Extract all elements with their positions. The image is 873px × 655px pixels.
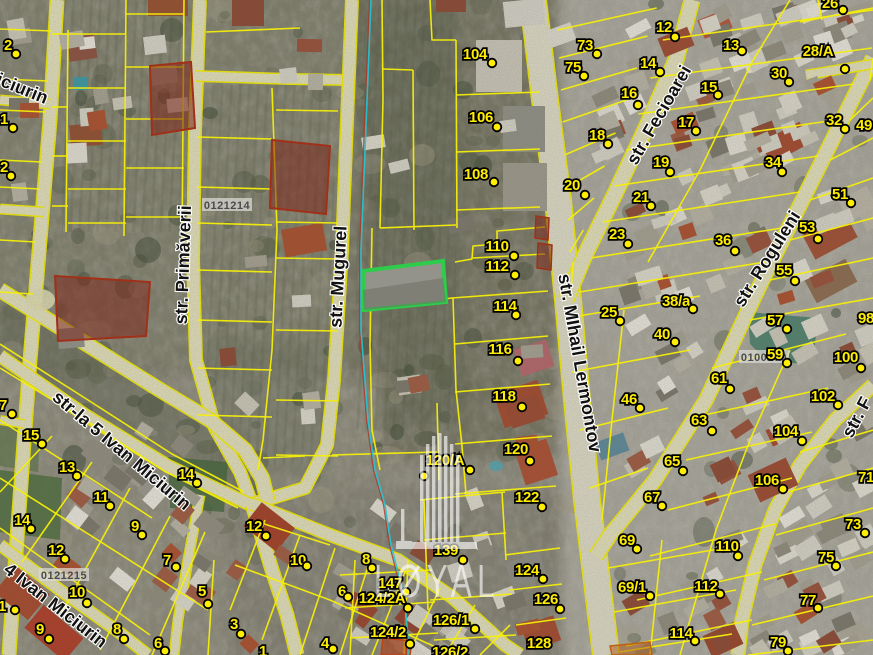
svg-text:118: 118 (492, 388, 515, 405)
svg-text:13: 13 (723, 37, 739, 54)
svg-text:7: 7 (0, 397, 7, 414)
svg-text:126/1: 126/1 (433, 612, 469, 629)
svg-text:1: 1 (259, 643, 267, 655)
svg-text:124: 124 (515, 562, 540, 579)
svg-text:LOYAL: LOYAL (374, 555, 500, 607)
svg-text:7: 7 (163, 552, 171, 569)
svg-text:49: 49 (856, 117, 872, 134)
svg-text:12: 12 (656, 19, 672, 36)
svg-text:71: 71 (858, 469, 873, 486)
svg-text:23: 23 (609, 226, 625, 243)
svg-text:14: 14 (178, 466, 195, 483)
svg-text:126: 126 (534, 591, 558, 608)
svg-text:108: 108 (464, 166, 488, 183)
svg-text:40: 40 (654, 326, 670, 343)
svg-text:102: 102 (811, 388, 835, 405)
svg-text:104: 104 (774, 423, 799, 440)
svg-text:32: 32 (826, 112, 842, 129)
svg-text:110: 110 (485, 238, 508, 255)
svg-text:0121214: 0121214 (204, 200, 251, 212)
svg-text:28/A: 28/A (803, 43, 834, 60)
svg-text:73: 73 (577, 37, 593, 54)
svg-text:51: 51 (832, 186, 848, 203)
svg-text:25: 25 (601, 304, 617, 321)
svg-text:53: 53 (799, 219, 815, 236)
svg-text:18: 18 (589, 127, 605, 144)
svg-text:112: 112 (485, 258, 508, 275)
svg-text:1: 1 (0, 598, 6, 615)
svg-text:98: 98 (858, 310, 873, 327)
svg-text:116: 116 (488, 341, 511, 358)
svg-text:3: 3 (230, 616, 238, 633)
svg-text:10: 10 (69, 584, 85, 601)
svg-text:120: 120 (504, 441, 528, 458)
svg-text:2: 2 (4, 37, 12, 54)
svg-text:59: 59 (767, 346, 783, 363)
svg-text:9: 9 (36, 621, 44, 638)
svg-text:128: 128 (527, 635, 551, 652)
svg-text:20: 20 (564, 177, 580, 194)
svg-text:73: 73 (845, 516, 861, 533)
svg-text:104: 104 (463, 46, 488, 63)
svg-text:26: 26 (822, 0, 838, 12)
svg-text:16: 16 (621, 85, 637, 102)
svg-text:12: 12 (246, 518, 262, 535)
svg-text:75: 75 (565, 59, 581, 76)
svg-text:57: 57 (767, 312, 783, 329)
svg-text:122: 122 (515, 489, 539, 506)
svg-text:65: 65 (664, 453, 680, 470)
svg-text:112: 112 (694, 578, 717, 595)
svg-text:126/2: 126/2 (432, 644, 468, 655)
svg-text:106: 106 (755, 472, 779, 489)
svg-text:0121215: 0121215 (41, 570, 87, 582)
svg-text:15: 15 (23, 427, 39, 444)
svg-text:106: 106 (469, 109, 493, 126)
svg-text:55: 55 (776, 262, 792, 279)
svg-text:61: 61 (711, 370, 727, 387)
svg-text:114: 114 (669, 625, 693, 642)
svg-text:str. Primăverii: str. Primăverii (171, 205, 195, 325)
svg-text:69/1: 69/1 (618, 579, 646, 596)
svg-text:5: 5 (198, 583, 206, 600)
svg-text:100: 100 (834, 349, 858, 366)
svg-text:8: 8 (113, 621, 121, 638)
svg-text:63: 63 (691, 412, 707, 429)
svg-text:124/2: 124/2 (370, 624, 406, 641)
svg-text:38/a: 38/a (662, 293, 691, 310)
svg-text:14: 14 (640, 55, 657, 72)
svg-text:36: 36 (715, 232, 731, 249)
svg-text:1: 1 (0, 111, 8, 128)
svg-text:46: 46 (621, 391, 637, 408)
